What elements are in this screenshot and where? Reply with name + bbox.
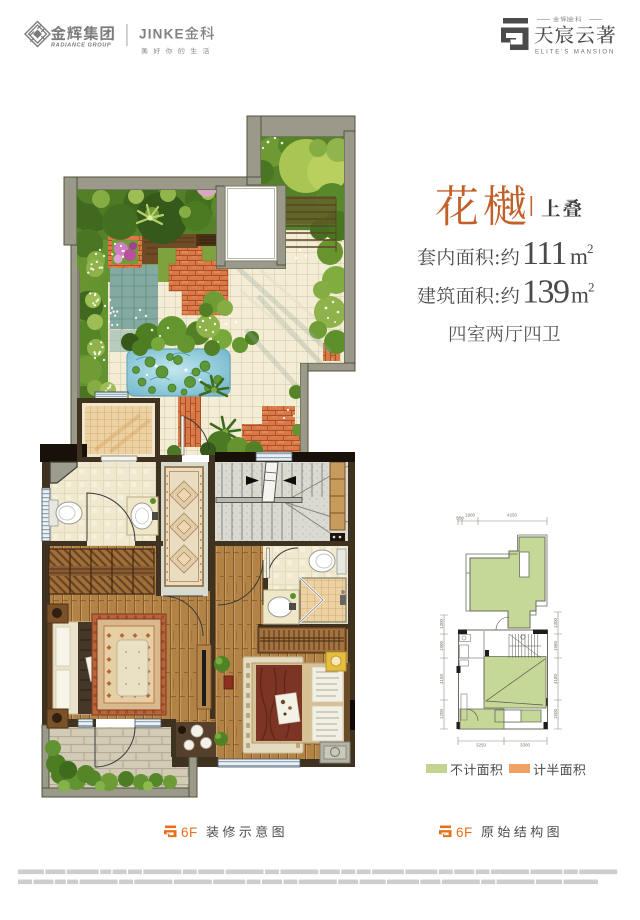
svg-text:ELITE’S MANSION: ELITE’S MANSION — [535, 50, 615, 56]
svg-text:550: 550 — [456, 516, 464, 521]
svg-text:1900: 1900 — [465, 513, 476, 518]
svg-text:1200: 1200 — [439, 708, 444, 719]
svg-text:2: 2 — [587, 241, 594, 256]
svg-text:6F: 6F — [181, 825, 198, 840]
svg-text:1960: 1960 — [553, 640, 558, 651]
svg-text:RADIANCE GROUP: RADIANCE GROUP — [51, 43, 111, 49]
svg-text:1300: 1300 — [553, 617, 558, 628]
svg-text:4250: 4250 — [507, 513, 518, 518]
svg-text:1500: 1500 — [553, 708, 558, 719]
svg-text:1300: 1300 — [439, 618, 444, 629]
svg-text:1900: 1900 — [439, 640, 444, 651]
svg-text:2: 2 — [588, 280, 595, 295]
svg-text:6F: 6F — [456, 825, 473, 840]
svg-text:111: 111 — [522, 235, 566, 272]
svg-text:m: m — [571, 283, 589, 308]
svg-text:m: m — [570, 244, 588, 269]
svg-text:3300: 3300 — [520, 743, 531, 748]
svg-text:4180: 4180 — [553, 673, 558, 684]
svg-text:JINKE: JINKE — [139, 27, 185, 42]
svg-text:3250: 3250 — [476, 743, 487, 748]
svg-text:4150: 4150 — [439, 673, 444, 684]
svg-text:139: 139 — [522, 274, 569, 311]
